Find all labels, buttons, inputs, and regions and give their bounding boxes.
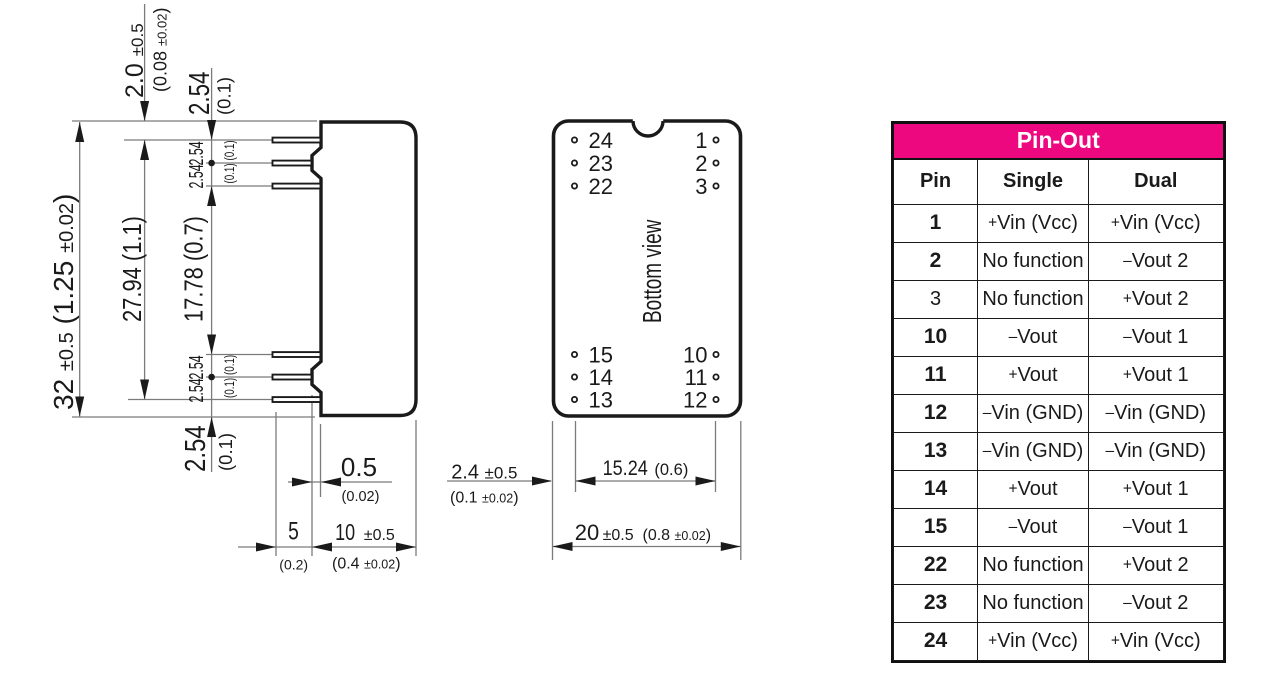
svg-text:23: 23 [589, 151, 613, 176]
svg-text:(0.6): (0.6) [654, 461, 688, 479]
svg-text:13: 13 [589, 388, 613, 413]
svg-text:(0.1): (0.1) [221, 163, 237, 183]
svg-text:2.54: 2.54 [185, 378, 208, 402]
svg-text:±0.5: ±0.5 [603, 527, 634, 544]
svg-text:12: 12 [683, 388, 707, 413]
svg-text:5: 5 [288, 517, 299, 545]
svg-text:11: 11 [685, 365, 708, 390]
svg-text:(0.2): (0.2) [279, 557, 308, 573]
svg-text:24: 24 [589, 128, 613, 153]
svg-text:1: 1 [695, 128, 707, 153]
svg-text:(0.8 ±0.02): (0.8 ±0.02) [643, 527, 712, 544]
svg-text:3: 3 [695, 174, 707, 199]
svg-text:17.78 (0.7): 17.78 (0.7) [180, 216, 209, 322]
svg-text:±0.5: ±0.5 [485, 464, 518, 483]
svg-text:15: 15 [589, 343, 613, 368]
svg-text:2.54: 2.54 [185, 355, 208, 379]
svg-text:20: 20 [575, 520, 599, 545]
svg-text:0.5: 0.5 [341, 452, 377, 482]
svg-text:(0.02): (0.02) [342, 489, 380, 505]
svg-text:±0.5: ±0.5 [364, 527, 395, 544]
svg-text:27.94 (1.1): 27.94 (1.1) [118, 216, 147, 322]
svg-text:15.24: 15.24 [603, 457, 648, 481]
svg-text:2.54: 2.54 [185, 164, 208, 188]
svg-text:(0.1): (0.1) [221, 140, 237, 160]
svg-text:10: 10 [683, 343, 707, 368]
svg-text:2.54: 2.54 [185, 141, 208, 165]
svg-text:Bottom view: Bottom view [637, 219, 667, 323]
svg-text:32 ±0.5 (1.25 ±0.02): 32 ±0.5 (1.25 ±0.02) [48, 194, 79, 410]
svg-text:10: 10 [335, 520, 355, 546]
svg-text:2.54: 2.54 [179, 425, 212, 472]
svg-text:14: 14 [589, 365, 613, 390]
svg-text:(0.4 ±0.02): (0.4 ±0.02) [332, 555, 401, 572]
svg-text:(0.08 ±0.02): (0.08 ±0.02) [151, 8, 171, 92]
svg-text:(0.1): (0.1) [221, 378, 237, 398]
svg-text:2.4: 2.4 [451, 462, 479, 484]
svg-text:2: 2 [695, 151, 707, 176]
svg-text:2.0 ±0.5: 2.0 ±0.5 [121, 23, 149, 98]
svg-text:(0.1): (0.1) [214, 77, 235, 115]
svg-text:(0.1 ±0.02): (0.1 ±0.02) [450, 490, 519, 507]
svg-text:2.54: 2.54 [184, 72, 215, 115]
svg-text:(0.1): (0.1) [215, 433, 236, 471]
svg-text:(0.1): (0.1) [221, 355, 237, 375]
svg-text:22: 22 [589, 174, 613, 199]
